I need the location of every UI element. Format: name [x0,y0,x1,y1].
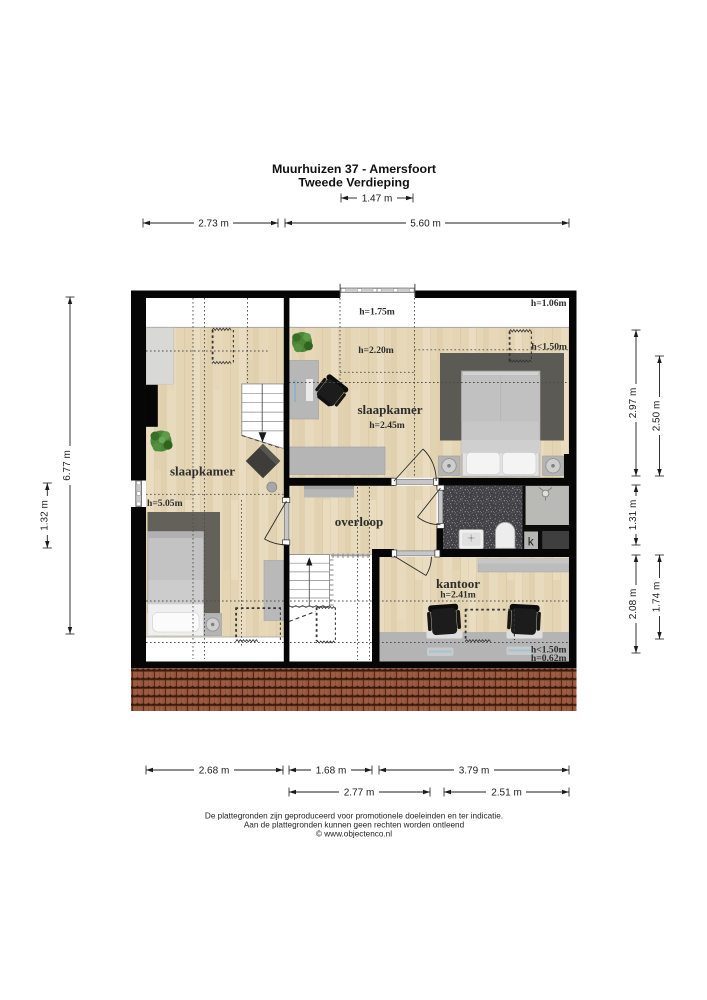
svg-text:slaapkamer: slaapkamer [358,402,423,417]
svg-text:2.50 m: 2.50 m [652,401,663,432]
svg-text:1.47 m: 1.47 m [362,193,393,204]
svg-text:De plattegronden zijn geproduc: De plattegronden zijn geproduceerd voor … [205,812,503,821]
svg-text:2.97 m: 2.97 m [628,388,639,419]
svg-text:h=2.45m: h=2.45m [369,420,405,431]
svg-text:slaapkamer: slaapkamer [170,464,235,479]
svg-text:k: k [528,534,535,548]
svg-text:2.77 m: 2.77 m [344,787,375,798]
svg-text:6.77 m: 6.77 m [62,450,73,481]
svg-text:h=1.06m: h=1.06m [531,298,567,309]
svg-text:3.79 m: 3.79 m [459,765,490,776]
svg-text:1.68 m: 1.68 m [316,765,347,776]
svg-text:1.32 m: 1.32 m [39,500,50,531]
svg-text:© www.objectenco.nl: © www.objectenco.nl [316,830,392,839]
svg-text:Muurhuizen 37 - Amersfoort: Muurhuizen 37 - Amersfoort [272,162,436,176]
svg-text:h=2.20m: h=2.20m [358,345,394,356]
svg-text:5.60 m: 5.60 m [410,218,441,229]
svg-text:h=5.05m: h=5.05m [147,498,183,509]
svg-text:2.08 m: 2.08 m [628,589,639,620]
svg-text:2.68 m: 2.68 m [199,765,230,776]
svg-text:h=1.75m: h=1.75m [359,307,395,318]
svg-text:1.74 m: 1.74 m [652,582,663,613]
svg-text:Tweede Verdieping: Tweede Verdieping [298,175,409,189]
svg-text:2.73 m: 2.73 m [198,218,229,229]
svg-text:h<1.50m: h<1.50m [531,342,567,353]
svg-text:Aan de plattegronden kunnen ge: Aan de plattegronden kunnen geen rechten… [244,821,465,830]
svg-text:overloop: overloop [335,514,383,529]
svg-text:h=2.41m: h=2.41m [440,590,476,601]
svg-text:1.31 m: 1.31 m [628,500,639,531]
svg-text:h=0.62m: h=0.62m [531,653,567,664]
svg-text:2.51 m: 2.51 m [491,787,522,798]
